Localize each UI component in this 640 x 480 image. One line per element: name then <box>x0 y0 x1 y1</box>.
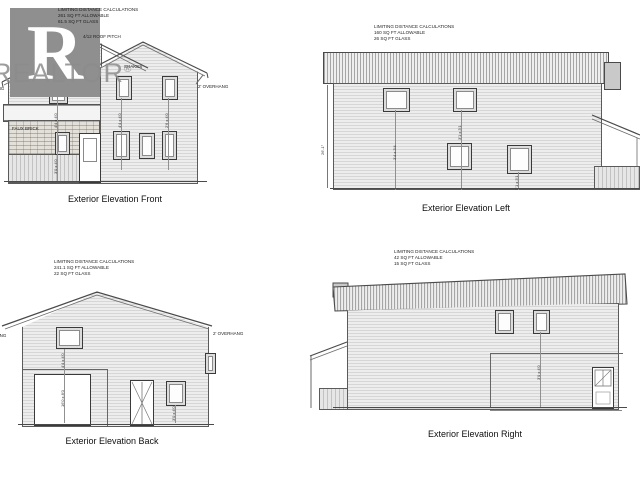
right-slab-line <box>490 410 622 411</box>
back-dim-window: 3'0 x 4'0 <box>171 406 176 421</box>
front-overhang-right-label: 2' OVERHANG <box>198 84 228 89</box>
left-calc-glass: 26 SQ FT GLASS <box>374 36 454 42</box>
left-height-dim-text: 26'-1" <box>320 145 325 155</box>
front-dim-line-2 <box>121 98 122 170</box>
right-window-upper-1 <box>495 310 514 334</box>
right-door-glazing <box>593 368 613 408</box>
left-calc-block: LIMITING DISTANCE CALCULATIONS 160 SQ FT… <box>374 24 454 41</box>
left-window-lower-1 <box>447 143 472 170</box>
back-dim-upper: 4'4 x 4'0 <box>60 353 65 368</box>
left-dim-win-b: 3'1 x 3'1 <box>457 125 462 140</box>
right-dim-wall: 3'0 x 4'0 <box>536 365 541 380</box>
front-window-upper-right <box>162 76 178 100</box>
front-faux-brick-label: FAUX BRICK <box>12 126 39 131</box>
left-dim-win-a: 3'4 x 3'4 <box>392 145 397 160</box>
back-window-lower <box>166 381 186 406</box>
back-window-side-edge <box>205 353 216 374</box>
back-door <box>130 380 154 426</box>
left-elevation: LIMITING DISTANCE CALCULATIONS 160 SQ FT… <box>315 20 640 215</box>
front-entry-door <box>79 133 101 183</box>
front-calc-glass: 61.5 SQ FT GLASS <box>58 19 138 25</box>
right-elevation: LIMITING DISTANCE CALCULATIONS 42 SQ FT … <box>305 245 640 445</box>
left-dim-line-b <box>461 110 462 190</box>
right-caption: Exterior Elevation Right <box>390 429 560 439</box>
front-ground-line <box>4 181 207 182</box>
left-window-lower-2 <box>507 145 532 174</box>
front-door-panel <box>83 138 97 162</box>
realtor-wordmark: REALTOR® <box>0 58 132 89</box>
left-window-upper-1 <box>383 88 410 112</box>
right-calc-block: LIMITING DISTANCE CALCULATIONS 42 SQ FT … <box>394 249 474 266</box>
front-dim-upper-mid: 4'4 x 4'0 <box>117 113 122 128</box>
left-ground-line <box>330 188 640 189</box>
right-calc-title: LIMITING DISTANCE CALCULATIONS <box>394 249 474 255</box>
back-ground-line <box>18 424 214 425</box>
front-roof-pitch-label: 4/12 ROOF PITCH <box>83 34 121 39</box>
back-overhang-right-label: 2' OVERHANG <box>213 331 243 336</box>
front-window-lower-2 <box>139 133 155 159</box>
elevation-sheet: FAUX BRICK 4'4 x 4'0 3'0 x 4'0 4'4 x 4'0 <box>0 0 640 480</box>
back-door-glazing <box>131 381 153 425</box>
front-dim-upper-left: 4'4 x 4'0 <box>53 113 58 128</box>
front-caption: Exterior Elevation Front <box>35 194 195 204</box>
front-dim-upper-right: 2'6 x 4'0 <box>164 113 169 128</box>
front-calc-block: LIMITING DISTANCE CALCULATIONS 261 SQ FT… <box>58 7 138 24</box>
left-chimney <box>604 62 621 90</box>
right-ground-line <box>333 407 627 408</box>
back-elevation: LIMITING DISTANCE CALCULATIONS 241.1 SQ … <box>0 255 245 455</box>
front-window-lower-3 <box>162 131 177 160</box>
left-porch-railing <box>594 166 640 190</box>
right-door <box>592 367 614 409</box>
back-window-upper <box>56 327 83 349</box>
front-calc-title: LIMITING DISTANCE CALCULATIONS <box>58 7 138 13</box>
realtor-wordmark-text: REALTOR <box>0 58 124 88</box>
realtor-registered-mark: ® <box>124 64 132 75</box>
left-roof-band <box>323 52 609 84</box>
back-dim-garage: 16'0 x 8'0 <box>60 390 65 407</box>
back-calc-glass: 22 SQ FT GLASS <box>54 271 134 277</box>
back-caption: Exterior Elevation Back <box>32 436 192 446</box>
left-height-dim-line <box>327 85 328 188</box>
left-caption: Exterior Elevation Left <box>386 203 546 213</box>
back-roof-lines <box>0 285 230 335</box>
back-calc-title: LIMITING DISTANCE CALCULATIONS <box>54 259 134 265</box>
back-overhang-left-label: 2' OVERHANG <box>0 333 6 338</box>
left-window-upper-2 <box>453 88 477 112</box>
left-calc-title: LIMITING DISTANCE CALCULATIONS <box>374 24 454 30</box>
front-dim-line-3 <box>168 98 169 170</box>
right-window-upper-2 <box>533 310 550 334</box>
front-dim-garage-window: 3'0 x 4'0 <box>53 159 58 174</box>
back-calc-block: LIMITING DISTANCE CALCULATIONS 241.1 SQ … <box>54 259 134 276</box>
